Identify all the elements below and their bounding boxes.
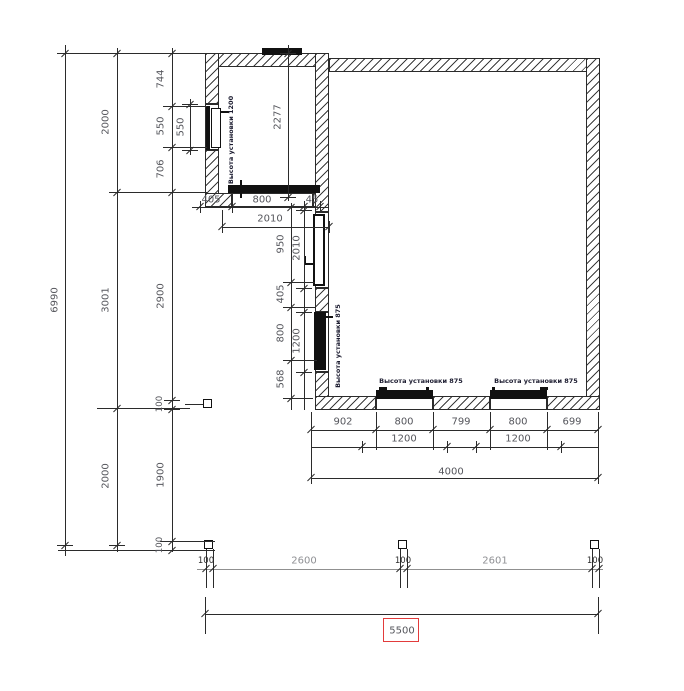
dim-2010-window: 2010 xyxy=(292,235,303,260)
dim-tick xyxy=(109,53,125,54)
wall-big-room-right xyxy=(586,58,600,410)
dim-1900: 1900 xyxy=(156,462,167,487)
dim-tick xyxy=(311,472,312,484)
dim-4000: 4000 xyxy=(438,467,463,478)
dim-line-top-room-span xyxy=(222,227,330,228)
dim-grid-100-left: 100 xyxy=(198,556,214,566)
dim-tick xyxy=(362,441,363,453)
dim-tick xyxy=(280,197,296,198)
radiator-bottom-2-bracket xyxy=(540,387,548,390)
dim-tick xyxy=(164,106,180,107)
wall-small-room-left-upper xyxy=(205,53,219,104)
dim-5500-value: 5500 xyxy=(389,626,414,637)
dim-tick xyxy=(182,150,198,151)
dim-tick xyxy=(547,424,548,436)
dim-grid-2600: 2600 xyxy=(291,556,316,567)
dim-405-wall: 405 xyxy=(276,284,287,303)
floor-plan-canvas: 6990 2000 3001 2000 744 550 706 2900 100… xyxy=(0,0,684,691)
dim-line-4000 xyxy=(311,478,598,479)
dim-45-top: 45 xyxy=(306,195,319,206)
column-marker xyxy=(590,540,599,549)
dim-2000-lower: 2000 xyxy=(101,463,112,488)
dim-2277: 2277 xyxy=(273,104,284,129)
dim-744: 744 xyxy=(156,69,167,88)
dim-tick xyxy=(447,441,448,453)
wall-big-room-bottom-3 xyxy=(547,396,600,410)
dim-550-a: 550 xyxy=(156,116,167,135)
dim-tick xyxy=(283,282,299,283)
dim-tick xyxy=(433,424,434,436)
radiator-small-room-bottom-bracket xyxy=(240,180,242,198)
dim-tick xyxy=(598,472,599,484)
dim-tick xyxy=(164,53,180,54)
dim-tick xyxy=(164,541,180,542)
dim-699: 699 xyxy=(562,417,581,428)
dim-tick xyxy=(109,408,125,409)
dim-tick xyxy=(164,147,180,148)
dim-1200-bottom-1: 1200 xyxy=(391,434,416,445)
dim-tick xyxy=(296,312,312,313)
wall-shared-middle xyxy=(315,288,329,312)
radiator-bottom-1-bracket xyxy=(379,387,387,390)
radiator-left-wall-2 xyxy=(314,312,326,370)
dim-line-total-width xyxy=(205,614,599,615)
annotation-install-height-small-room: Высота установки 1200 xyxy=(227,96,235,184)
dim-line-col3 xyxy=(172,48,173,552)
dim-tick xyxy=(320,201,321,213)
dim-tick xyxy=(376,424,377,436)
dim-grid-100-right: 100 xyxy=(587,556,603,566)
dim-grid-100-mid: 100 xyxy=(395,556,411,566)
annotation-install-height-bottom-1: Высота установки 875 xyxy=(379,377,463,385)
dim-tick xyxy=(164,400,180,401)
dim-tick xyxy=(222,221,223,233)
radiator-small-room-left-body xyxy=(211,108,221,148)
radiator-bottom-1-tab xyxy=(426,387,429,390)
dim-100-lower: 100 xyxy=(155,537,165,553)
radiator-bottom-2-tab xyxy=(492,387,495,390)
dim-100-upper: 100 xyxy=(155,396,165,412)
window-opening-small-room-bottom xyxy=(232,193,313,207)
radiator-bottom-2 xyxy=(490,390,547,399)
dim-line-room-2277 xyxy=(288,45,289,201)
dim-550-radiator: 550 xyxy=(176,117,187,136)
dim-800-wall: 800 xyxy=(276,323,287,342)
radiator-small-room-left xyxy=(206,106,210,150)
dim-tick xyxy=(57,53,73,54)
dim-tick xyxy=(598,608,599,620)
radiator-left-wall-2-bracket xyxy=(326,316,333,318)
dim-tick xyxy=(296,372,312,373)
dim-line-col2 xyxy=(117,48,118,552)
dim-1200-window: 1200 xyxy=(292,328,303,353)
wall-big-room-top xyxy=(329,58,600,72)
extension-line xyxy=(185,404,203,405)
dim-tick xyxy=(561,441,562,453)
annotation-install-height-bottom-2: Высота установки 875 xyxy=(494,377,578,385)
dim-grid-2601: 2601 xyxy=(482,556,507,567)
dim-tick xyxy=(232,201,233,213)
extension-line xyxy=(58,53,208,54)
dim-2900: 2900 xyxy=(156,283,167,308)
dim-800-chain-1: 800 xyxy=(394,417,413,428)
dim-tick xyxy=(283,207,299,208)
dim-1200-bottom-2: 1200 xyxy=(505,434,530,445)
dim-tick xyxy=(164,409,180,410)
dim-tick xyxy=(311,424,312,436)
wall-big-room-bottom-2 xyxy=(433,396,490,410)
extension-line xyxy=(58,550,215,551)
dim-3001: 3001 xyxy=(101,287,112,312)
dim-tick xyxy=(283,398,299,399)
dim-800-top: 800 xyxy=(252,195,271,206)
wall-small-room-top xyxy=(205,53,329,67)
dim-line-window-lengths xyxy=(304,206,305,410)
dim-tick xyxy=(296,288,312,289)
dim-line-bottom-windows xyxy=(311,447,598,448)
column-marker xyxy=(203,399,212,408)
dim-950: 950 xyxy=(276,234,287,253)
dim-line-top-room-chain xyxy=(192,207,329,208)
dim-2010-top-span: 2010 xyxy=(257,214,282,225)
annotation-install-height-left-wall: Высота установки 875 xyxy=(334,304,342,388)
dim-tick xyxy=(164,550,180,551)
radiator-left-wall-1 xyxy=(313,214,325,286)
dim-tick xyxy=(164,192,180,193)
dim-line-bottom-chain xyxy=(311,430,598,431)
dim-tick xyxy=(182,104,198,105)
dim-706: 706 xyxy=(156,159,167,178)
dim-tick xyxy=(490,424,491,436)
dim-tick xyxy=(476,441,477,453)
dim-800-chain-2: 800 xyxy=(508,417,527,428)
dim-tick xyxy=(280,53,296,54)
dim-902: 902 xyxy=(333,417,352,428)
dim-tick xyxy=(283,360,299,361)
dim-799: 799 xyxy=(451,417,470,428)
dim-tick xyxy=(205,608,206,620)
dim-405-top: 405 xyxy=(201,195,220,206)
dim-tick xyxy=(283,307,299,308)
dim-total-width-selected[interactable]: 5500 xyxy=(383,618,419,642)
wall-big-room-bottom-1 xyxy=(315,396,376,410)
radiator-bottom-1 xyxy=(376,390,433,399)
dim-tick xyxy=(109,192,125,193)
dim-568: 568 xyxy=(276,369,287,388)
dim-tick xyxy=(109,545,125,546)
dim-tick xyxy=(57,545,73,546)
dim-tick xyxy=(598,424,599,436)
column-marker xyxy=(398,540,407,549)
dim-2000-upper: 2000 xyxy=(101,109,112,134)
dim-tick xyxy=(329,221,330,233)
dim-line-total-height xyxy=(65,45,66,556)
dim-total-height: 6990 xyxy=(50,287,61,312)
